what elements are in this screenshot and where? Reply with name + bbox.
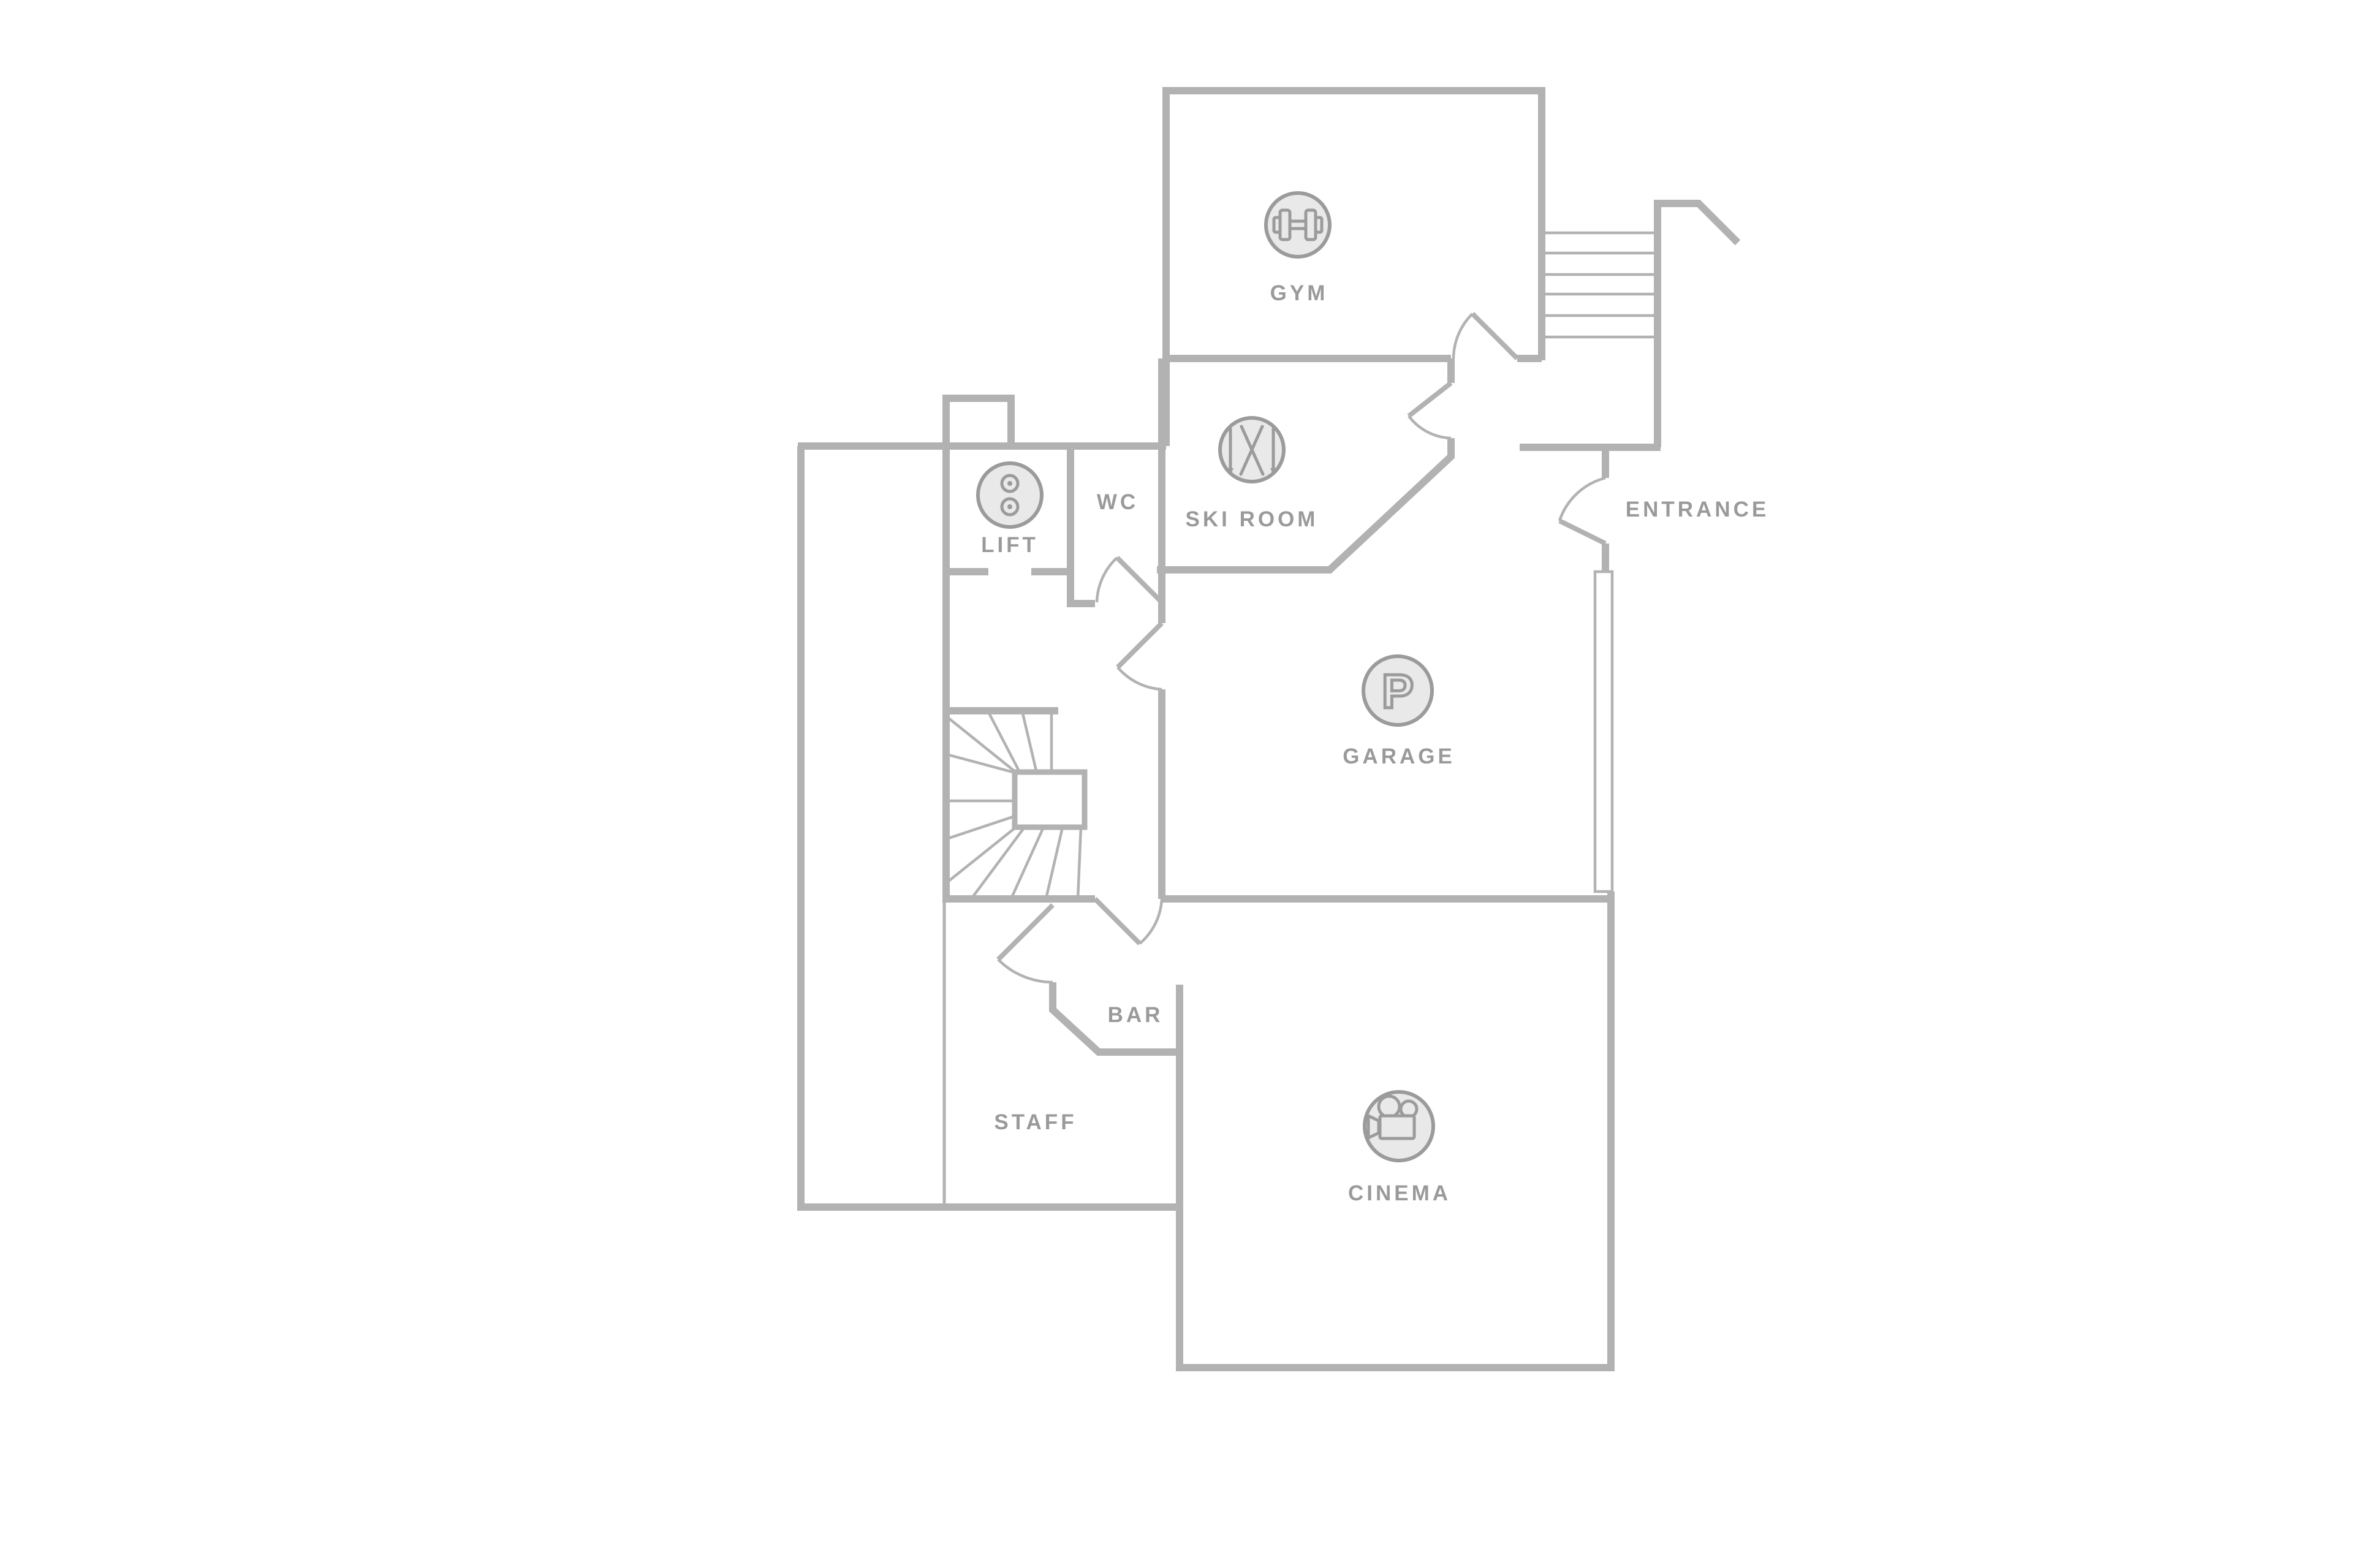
gym-label: GYM (1270, 281, 1328, 305)
doors (998, 314, 1605, 982)
lift-right-wall (1070, 446, 1095, 604)
gym-door (1453, 314, 1517, 358)
hall-bar-door (1095, 899, 1162, 944)
parking-p-icon: P (1382, 664, 1414, 718)
bar-label: BAR (1108, 1003, 1164, 1027)
cinema-label: CINEMA (1348, 1181, 1451, 1205)
gym-outline-wall (1166, 91, 1542, 446)
garage-icon-group: P (1363, 656, 1432, 725)
room-labels: GYM SKI ROOM LIFT WC GARAGE ENTRANCE BAR… (981, 281, 1769, 1205)
ski-room-zigzag-wall (1157, 358, 1451, 570)
staff-bar-door (998, 905, 1053, 982)
cinema-icon-group (1365, 1092, 1433, 1161)
lift-icon-bubble (978, 463, 1042, 527)
gym-icon-bubble (1266, 193, 1330, 257)
stair-treads (1545, 233, 1658, 337)
entry-stair-right-rail (1658, 203, 1738, 447)
lift-label: LIFT (981, 533, 1039, 557)
winder-staircase (949, 711, 1085, 899)
garage-side-door (1118, 623, 1162, 689)
gym-icon-group (1266, 193, 1330, 257)
garage-window-strip (1595, 572, 1612, 892)
floor-plan: P GYM SKI ROOM LIFT WC GARAGE ENTRANCE B… (0, 0, 2353, 1568)
lift-icon-group (978, 463, 1042, 527)
wc-door (1097, 558, 1162, 602)
staff-label: STAFF (994, 1110, 1077, 1134)
ski-room-label: SKI ROOM (1186, 507, 1319, 531)
winder-core (1015, 772, 1085, 827)
garage-label: GARAGE (1343, 744, 1455, 768)
exterior-entrance-stairs (1545, 233, 1658, 337)
entrance-door (1559, 478, 1605, 543)
ski-room-door (1409, 383, 1451, 438)
wc-label: WC (1097, 490, 1139, 514)
lift-shaft-bump (946, 398, 1011, 446)
entrance-label: ENTRANCE (1626, 498, 1769, 521)
ski-room-icon-group (1220, 418, 1284, 482)
